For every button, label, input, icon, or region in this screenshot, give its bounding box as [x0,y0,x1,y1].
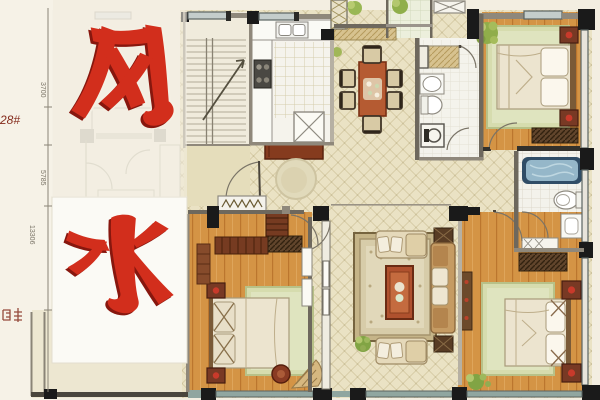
svg-text:3700: 3700 [39,82,46,98]
svg-text:5785: 5785 [39,170,46,186]
svg-text:13306: 13306 [28,225,35,245]
svg-text:28#: 28# [0,113,20,127]
